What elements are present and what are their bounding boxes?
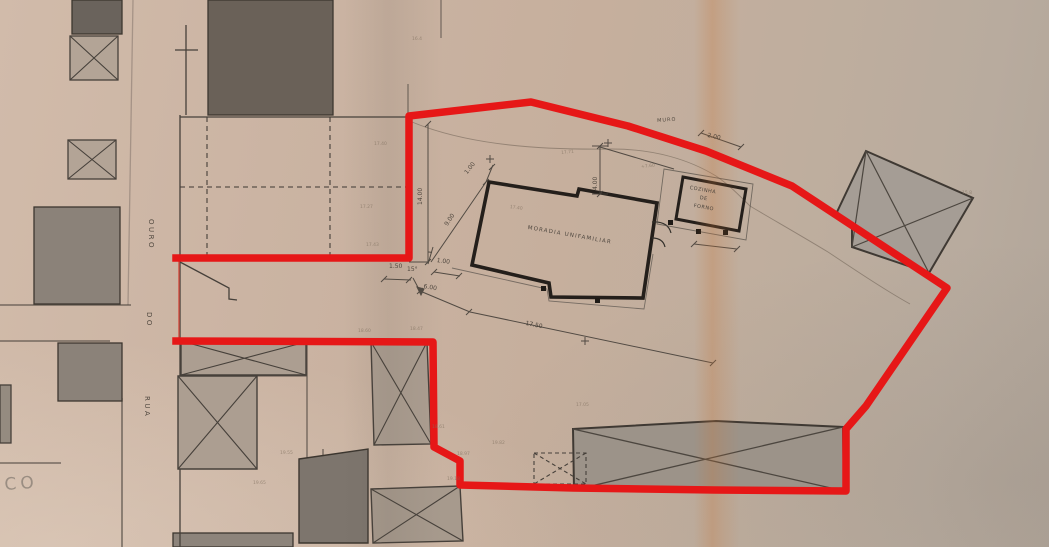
west-parcel-lines (0, 305, 131, 547)
survey-crosses (486, 139, 612, 345)
fold-band-left (343, 0, 443, 547)
building-west-solid1 (34, 207, 120, 304)
south-big-building (534, 421, 844, 491)
neighbor-corner-zigzag (180, 262, 237, 300)
building-west-solid2 (58, 343, 122, 401)
street-corner-marks (175, 25, 198, 115)
site-plan-document: MORADIA UNIFAMILIARCOZINHADEFORNOOURODOR… (0, 0, 1049, 547)
building-west-sliver (0, 385, 11, 443)
building-bottom-solid (173, 533, 293, 547)
plan-linework (0, 0, 1049, 547)
building-top-dark (208, 0, 333, 115)
street-left-edge (128, 0, 133, 305)
main-building-outline (472, 182, 657, 298)
house-yard-offset-lines (452, 254, 653, 309)
northeast-building (837, 151, 973, 273)
fold-band-right (694, 0, 740, 547)
building-west-dark (72, 0, 122, 34)
